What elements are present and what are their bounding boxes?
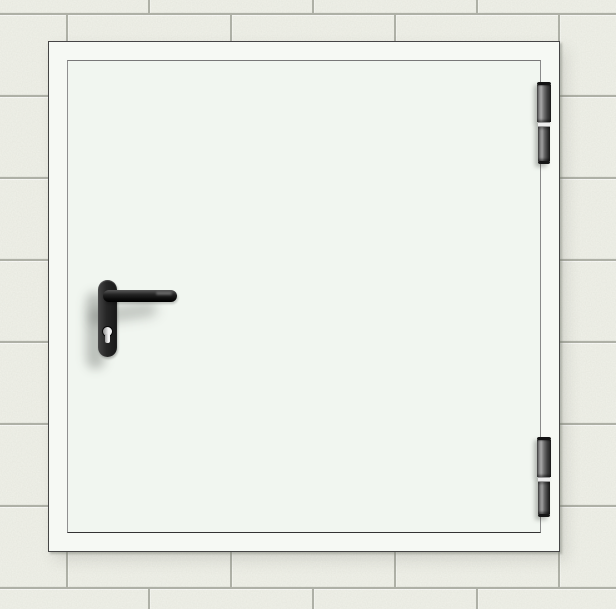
- keyhole-stem: [105, 334, 110, 343]
- wall-block: [560, 179, 616, 259]
- wall-block: [314, 589, 476, 609]
- wall-block: [560, 15, 616, 95]
- wall-block: [478, 0, 616, 13]
- wall-block: [150, 0, 312, 13]
- hinge-cap-icon: [538, 161, 550, 164]
- wall-block: [150, 589, 312, 609]
- hinge-barrel-upper: [537, 440, 551, 477]
- hinge-cap-icon: [538, 514, 550, 517]
- handle-lever: [103, 290, 177, 302]
- door-frame: [48, 41, 560, 552]
- wall-block: [0, 589, 148, 609]
- wall-block: [0, 0, 148, 13]
- bottom-hinge: [537, 437, 551, 517]
- hinge-barrel-lower: [538, 482, 550, 514]
- wall-block: [560, 343, 616, 423]
- scene: [0, 0, 616, 609]
- hinge-barrel-lower: [538, 127, 550, 161]
- wall-block: [478, 589, 616, 609]
- wall-block: [560, 507, 616, 587]
- wall-block: [314, 0, 476, 13]
- top-hinge: [537, 82, 551, 164]
- hinge-barrel-upper: [537, 85, 551, 122]
